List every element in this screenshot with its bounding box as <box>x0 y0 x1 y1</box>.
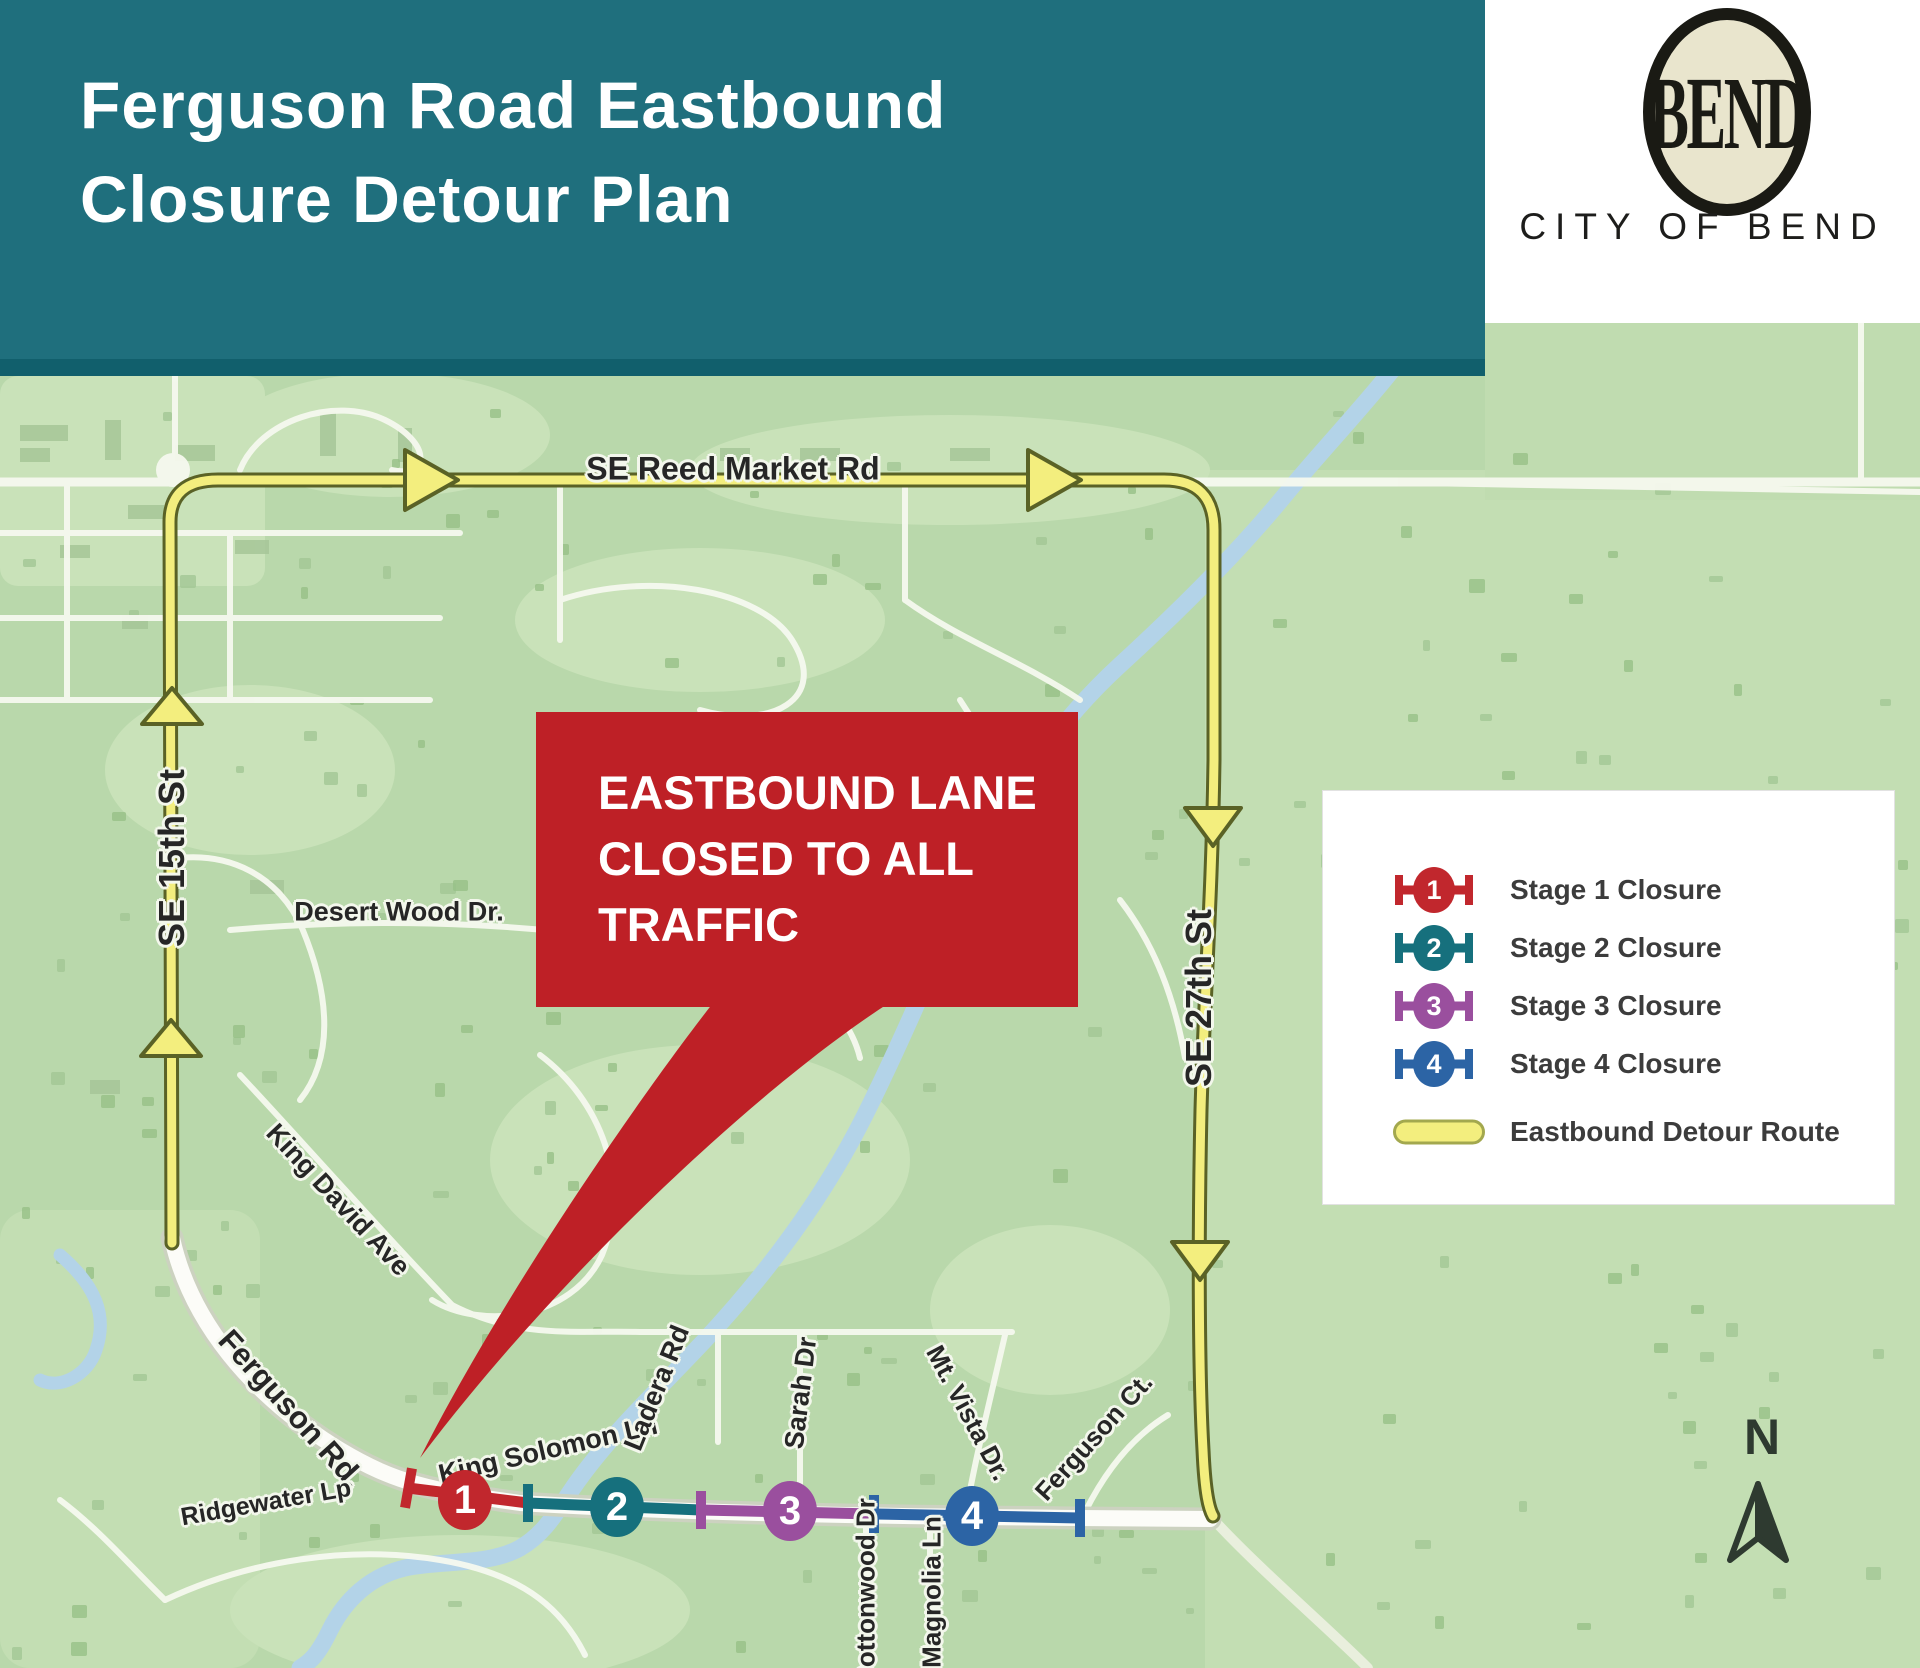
detour-plan-page: SE Reed Market Rd SE 15th St SE 27th St … <box>0 0 1920 1668</box>
page-header: Ferguson Road Eastbound Closure Detour P… <box>0 0 1485 376</box>
north-arrow-icon <box>1712 1466 1812 1586</box>
street-label-desert-wood: Desert Wood Dr. <box>294 897 504 928</box>
legend-label: Stage 2 Closure <box>1510 932 1722 964</box>
stage1-closure-icon: 1 <box>1395 869 1473 911</box>
stage-tick <box>1075 1499 1085 1537</box>
stage-marker-1: 1 <box>438 1470 492 1530</box>
bend-logo-icon: BEND <box>1485 0 1920 323</box>
legend-label: Stage 3 Closure <box>1510 990 1722 1022</box>
north-label: N <box>1712 1408 1812 1466</box>
legend-label: Stage 4 Closure <box>1510 1048 1722 1080</box>
page-title-line2: Closure Detour Plan <box>80 152 1485 246</box>
legend-item-stage2: 2 Stage 2 Closure <box>1323 919 1896 977</box>
stage2-closure-icon: 2 <box>1395 927 1473 969</box>
legend: 1 Stage 1 Closure 2 Stage 2 Closure 3 St… <box>1322 790 1895 1205</box>
legend-item-detour-route: Eastbound Detour Route <box>1323 1103 1896 1161</box>
street-label-se-15th: SE 15th St <box>151 769 193 947</box>
callout-text-line3: TRAFFIC <box>598 892 1078 958</box>
street-label-se-27th: SE 27th St <box>1178 909 1220 1087</box>
stage-tick <box>696 1491 706 1529</box>
city-logo-block: BEND CITY OF BEND <box>1485 0 1920 323</box>
legend-label: Eastbound Detour Route <box>1510 1116 1840 1148</box>
callout-text-line2: CLOSED TO ALL <box>598 826 1078 892</box>
bend-monogram: BEND <box>1649 57 1804 171</box>
stage3-closure-icon: 3 <box>1395 985 1473 1027</box>
street-label-reed-market: SE Reed Market Rd <box>586 451 879 488</box>
legend-item-stage3: 3 Stage 3 Closure <box>1323 977 1896 1035</box>
stage-marker-3: 3 <box>763 1481 817 1541</box>
stage-marker-2: 2 <box>590 1477 644 1537</box>
street-label-magnolia: Magnolia Ln <box>917 1516 948 1668</box>
stage-marker-4: 4 <box>945 1486 999 1546</box>
street-label-cottonwood: Cottonwood Dr <box>851 1498 882 1668</box>
city-name: CITY OF BEND <box>1485 206 1920 248</box>
page-title-line1: Ferguson Road Eastbound <box>80 58 1485 152</box>
legend-label: Stage 1 Closure <box>1510 874 1722 906</box>
legend-item-stage1: 1 Stage 1 Closure <box>1323 861 1896 919</box>
closure-callout: EASTBOUND LANE CLOSED TO ALL TRAFFIC <box>536 712 1078 1007</box>
north-indicator: N <box>1712 1408 1812 1598</box>
stage4-closure-icon: 4 <box>1395 1043 1473 1085</box>
callout-text-line1: EASTBOUND LANE <box>598 760 1078 826</box>
legend-item-stage4: 4 Stage 4 Closure <box>1323 1035 1896 1093</box>
stage-tick <box>523 1484 533 1522</box>
detour-route-icon <box>1393 1120 1485 1145</box>
